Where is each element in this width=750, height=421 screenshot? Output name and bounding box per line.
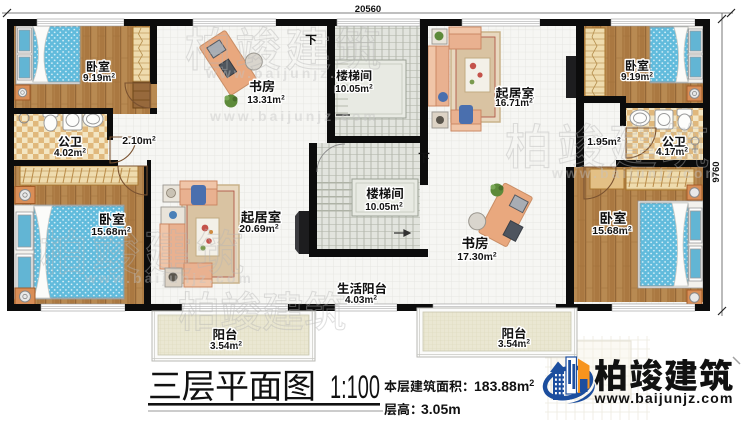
svg-text:3.05m: 3.05m [421, 401, 461, 417]
svg-text:4.03m2: 4.03m2 [345, 295, 377, 307]
svg-text:20560: 20560 [355, 4, 381, 15]
svg-text:9.19m2: 9.19m2 [621, 72, 653, 84]
svg-text:16.71m2: 16.71m2 [495, 98, 533, 110]
svg-text:www.baijunjz.com: www.baijunjz.com [551, 165, 721, 181]
svg-text:2.10m2: 2.10m2 [122, 135, 156, 147]
svg-text:www.baijunjz.com: www.baijunjz.com [209, 108, 379, 124]
svg-text:1.95m2: 1.95m2 [587, 136, 621, 148]
svg-text:3.54m2: 3.54m2 [498, 339, 530, 351]
svg-text:4.17m2: 4.17m2 [656, 147, 688, 159]
svg-text:1:100: 1:100 [330, 369, 380, 405]
svg-text:9760: 9760 [711, 161, 722, 182]
svg-text:13.31m2: 13.31m2 [247, 95, 285, 107]
svg-text:10.05m2: 10.05m2 [335, 84, 373, 96]
svg-text:3.54m2: 3.54m2 [210, 341, 242, 353]
svg-text:9.19m2: 9.19m2 [83, 73, 115, 85]
svg-text:20.69m2: 20.69m2 [239, 223, 279, 235]
svg-text:4.02m2: 4.02m2 [54, 148, 86, 160]
svg-text:17.30m2: 17.30m2 [457, 251, 497, 263]
svg-text:15.68m2: 15.68m2 [91, 226, 131, 238]
svg-text:183.88m2: 183.88m2 [474, 378, 534, 394]
svg-text:www.baijunjz.com: www.baijunjz.com [593, 391, 733, 406]
svg-text:www.baijunjz.com: www.baijunjz.com [84, 270, 254, 286]
svg-text:15.68m2: 15.68m2 [592, 225, 632, 237]
svg-text:10.05m2: 10.05m2 [365, 202, 403, 214]
